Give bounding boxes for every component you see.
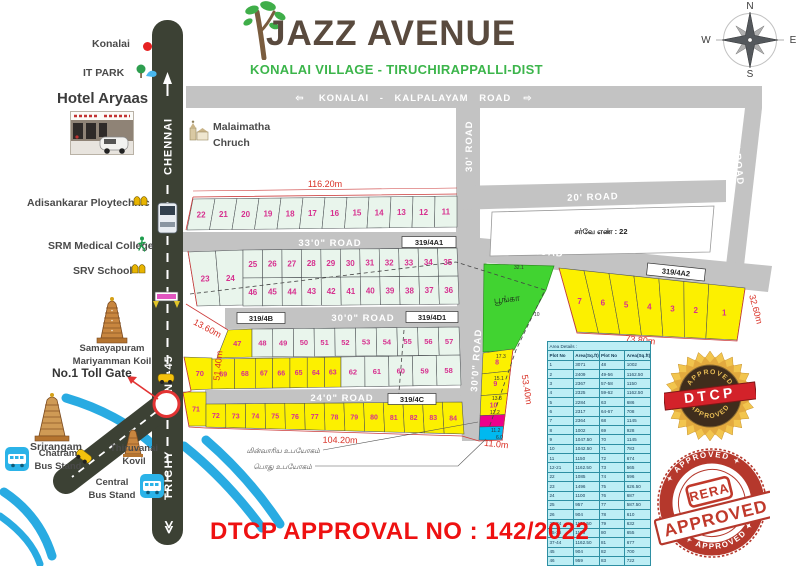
plot-number: 16: [330, 209, 339, 218]
chatram-line1: Chatram: [32, 448, 84, 461]
plot-number: 76: [291, 414, 299, 421]
area-table-cell: 25: [548, 500, 574, 509]
annotation-public: பொது உபயோகம்: [253, 463, 312, 472]
plot-number: 36: [444, 286, 453, 295]
road-24-label: 24'0" ROAD: [310, 393, 373, 404]
area-table-cell: 700: [625, 547, 651, 556]
plot-number: 67: [260, 371, 268, 378]
trichy-chevrons: ≪: [161, 520, 176, 534]
dim-small: 32.1: [514, 265, 524, 271]
area-table-cell: 45: [548, 547, 574, 556]
plot-number: 8: [495, 359, 499, 366]
road-30c-label: 30' ROAD: [464, 121, 475, 172]
area-table-cell: 686: [625, 398, 651, 407]
plot-number: 21: [219, 210, 228, 219]
dim-small: 10: [534, 312, 540, 318]
plot-number: 81: [390, 415, 398, 422]
dtcp-approved-stamp: APPROVED APPROVED DTCP: [664, 348, 756, 446]
plot-number: 6: [601, 299, 606, 308]
area-table-cell: 81: [599, 538, 625, 547]
plot-number: 27: [287, 259, 296, 268]
central-bus-stand-icon: [140, 474, 164, 498]
area-table-cell: 83: [599, 556, 625, 565]
plot-number: 53: [362, 338, 370, 347]
area-table-cell: 1085: [573, 472, 599, 481]
area-table-cell: 1002: [573, 426, 599, 435]
samayapuram-temple-icon: [96, 296, 128, 344]
plot-number: 84: [449, 415, 457, 422]
plot-number: 9: [493, 381, 497, 388]
plot-number: 7: [577, 297, 582, 306]
area-table-cell: 72: [599, 454, 625, 463]
area-table-row: 12-211162.5073565: [548, 463, 651, 472]
area-table-cell: 1145: [625, 435, 651, 444]
area-table-cell: 75: [599, 482, 625, 491]
survey-box-label: 319/4A1: [415, 238, 443, 247]
area-table-cell: 23: [548, 482, 574, 491]
area-table-cell: 78: [599, 510, 625, 519]
reserved-plot: [480, 415, 505, 427]
area-table-cell: 9: [548, 435, 574, 444]
area-table-cell: 12-21: [548, 463, 574, 472]
survey-box-label: 319/4C: [400, 395, 425, 404]
area-table-cell: 722: [625, 556, 651, 565]
landmark-malaimatha: Malaimatha Chruch: [213, 120, 270, 152]
plot-number: 82: [410, 415, 418, 422]
plot-number: 51: [320, 338, 328, 347]
landmark-thiruvanai: Thiruvanai Kovil: [104, 443, 164, 469]
plot-number: 40: [366, 287, 375, 296]
compass-hub: [748, 38, 752, 42]
area-table-cell: 1162.50: [625, 370, 651, 379]
plot-number: 44: [288, 287, 297, 296]
area-table-cell: 10: [548, 444, 574, 453]
compass-n: N: [746, 1, 753, 12]
plot-number: 18: [286, 209, 295, 218]
area-table-cell: 57-58: [599, 379, 625, 388]
area-table-header: Plot No: [548, 351, 574, 360]
plot-number: 65: [295, 370, 303, 377]
central-line2: Bus Stand: [84, 490, 140, 503]
area-table-cell: 1150: [625, 379, 651, 388]
landmark-srv: SRV School: [73, 265, 132, 277]
area-table-cell: 928: [625, 426, 651, 435]
dim-116: 116.20m: [308, 179, 342, 189]
area-table-cell: 1162.50: [573, 463, 599, 472]
bus-icon: [158, 203, 177, 233]
dim-small: 15.1: [494, 376, 504, 382]
plot-number: 31: [365, 259, 374, 268]
area-table-cell: 959: [573, 556, 599, 565]
plot-number: 28: [307, 259, 316, 268]
area-table-cell: 783: [625, 444, 651, 453]
plot-number: 77: [311, 414, 319, 421]
dim-53: 53.40m: [520, 374, 535, 405]
roundabout: [154, 392, 179, 417]
plot-number: 80: [370, 415, 378, 422]
banner-arrow-right: ⇨: [524, 93, 533, 104]
road-30-label: 30'0" ROAD: [331, 313, 394, 324]
plot-number: 78: [331, 414, 339, 421]
area-table-cell: 610: [625, 510, 651, 519]
area-table-cell: 3: [548, 379, 574, 388]
area-table-header: Area(Sq.ft): [625, 351, 651, 360]
area-table-cell: 59-62: [599, 388, 625, 397]
dim-104: 104.20m: [322, 435, 357, 446]
area-table-cell: 1100: [573, 491, 599, 500]
dim-small: 11.2: [491, 428, 501, 434]
area-table-cell: 82: [599, 547, 625, 556]
plot-number: 41: [346, 287, 355, 296]
area-table-row: 4695983722: [548, 556, 651, 565]
area-table-cell: 73: [599, 463, 625, 472]
area-table-title: Area Details :: [548, 342, 651, 351]
area-table-row: 101042.5071783: [548, 444, 651, 453]
plot-number: 3: [670, 304, 675, 313]
area-table-cell: 5: [548, 398, 574, 407]
area-table-cell: 1496: [573, 482, 599, 491]
plot-number: 62: [349, 368, 357, 377]
plot-number: 26: [268, 260, 277, 269]
area-table-cell: 6: [548, 407, 574, 416]
thiruvanai-line2: Kovil: [104, 456, 164, 469]
plot-number: 2: [693, 306, 698, 315]
plot-number: 5: [624, 301, 629, 310]
survey-box-label: 319/4B: [249, 314, 274, 323]
plot-number: 74: [252, 414, 260, 421]
area-table-row: 6231764-67708: [548, 407, 651, 416]
plot-number: 38: [405, 286, 414, 295]
plot-number: 30: [346, 259, 355, 268]
area-table-cell: 587.50: [625, 500, 651, 509]
plot-number: 14: [375, 208, 384, 217]
area-table-cell: 674: [625, 454, 651, 463]
landmark-it-park: IT PARK: [83, 67, 124, 79]
central-line1: Central: [84, 477, 140, 490]
area-table-cell: 49-56: [599, 370, 625, 379]
plot-number: 47: [233, 339, 241, 348]
road-20-label: 20' ROAD: [567, 191, 619, 204]
area-table-cell: 632: [625, 519, 651, 528]
chatram-bus-stand-icon: [5, 447, 29, 471]
thiruvanai-line1: Thiruvanai: [104, 443, 164, 456]
konalai-dot-icon: [143, 42, 152, 51]
area-table-cell: 8: [548, 426, 574, 435]
area-table-row: 8100269928: [548, 426, 651, 435]
area-table-cell: 2325: [573, 388, 599, 397]
area-table-cell: 48: [599, 360, 625, 369]
area-table-cell: 2284: [573, 398, 599, 407]
dim-small: 17.3: [496, 354, 506, 360]
plot-number: 32: [385, 259, 394, 268]
area-table-cell: 68: [599, 416, 625, 425]
plot-number: 1: [722, 309, 727, 318]
plot-number: 64: [312, 370, 320, 377]
area-table-cell: 904: [573, 547, 599, 556]
plot-number: 24: [226, 274, 235, 283]
malaimatha-line1: Malaimatha: [213, 120, 270, 136]
plot-number: 33: [404, 258, 413, 267]
area-table-cell: 11: [548, 454, 574, 463]
park-area: [483, 264, 554, 352]
plot-number: 52: [341, 338, 349, 347]
landmark-central: Central Bus Stand: [84, 477, 140, 503]
area-table-row: 2240949-561162.50: [548, 370, 651, 379]
plot-number: 10: [490, 402, 498, 409]
compass-s: S: [747, 69, 754, 80]
area-table-cell: 1047.50: [573, 435, 599, 444]
rera-approved-stamp: ✦ APPROVED ✦ ✦ APPROVED ✦ RERA APPROVED: [654, 444, 770, 562]
malaimatha-line2: Chruch: [213, 136, 270, 152]
area-table-cell: 63: [599, 398, 625, 407]
landmark-samayapuram: Samayapuram Mariyamman Koil: [72, 343, 152, 369]
plot-number: 19: [263, 210, 272, 219]
area-table-cell: 22: [548, 472, 574, 481]
area-table-row: 23149675626.50: [548, 482, 651, 491]
plot-number: 54: [383, 337, 392, 346]
area-table-cell: 76: [599, 491, 625, 500]
plot-number: 73: [232, 413, 240, 420]
plot-number: 17: [308, 209, 317, 218]
walking-person-icon: [137, 236, 150, 252]
institute-icon: [133, 193, 149, 206]
area-table-row: 22108574596: [548, 472, 651, 481]
area-table-row: 24110076687: [548, 491, 651, 500]
area-table-cell: 708: [625, 407, 651, 416]
plot-number: 59: [420, 366, 428, 375]
plot-number: 29: [326, 259, 335, 268]
area-table-cell: 2367: [573, 379, 599, 388]
area-table-cell: 626.50: [625, 482, 651, 491]
chennai-label: CHENNAI: [163, 118, 175, 175]
banner-road-label: KONALAI - KALPALAYAM ROAD: [319, 93, 511, 104]
samayapuram-line1: Samayapuram: [72, 343, 152, 356]
area-table-cell: 2364: [573, 416, 599, 425]
chatram-line2: Bus Stand: [32, 461, 84, 474]
area-table-header: Area(Sq.ft): [573, 351, 599, 360]
dim-13: 13.60m: [192, 317, 223, 340]
plot-number: 22: [197, 210, 206, 219]
area-table-row: 3236757-581150: [548, 379, 651, 388]
landmark-chatram: Chatram Bus Stand: [32, 448, 84, 474]
area-table-cell: 64-67: [599, 407, 625, 416]
plot-number: 58: [444, 366, 452, 375]
area-table-cell: 69: [599, 426, 625, 435]
area-table-row: 91047.50701145: [548, 435, 651, 444]
dim-small: 12.2: [490, 410, 500, 416]
plot-number: 34: [424, 258, 433, 267]
plot-number: 45: [268, 288, 277, 297]
area-table-cell: 1150: [573, 454, 599, 463]
plot-number: 71: [192, 407, 200, 414]
road-33-label: 33'0" ROAD: [298, 238, 361, 249]
plot-number: 83: [429, 415, 437, 422]
area-table-row: 2595777587.50: [548, 500, 651, 509]
plot-number: 37: [425, 286, 434, 295]
plot-number: 39: [385, 287, 394, 296]
area-table-cell: 2409: [573, 370, 599, 379]
plot-number: 35: [443, 258, 452, 267]
area-table-cell: 80: [599, 528, 625, 537]
plot-number: 25: [248, 260, 257, 269]
area-table-cell: 77: [599, 500, 625, 509]
plot-number: 42: [327, 287, 336, 296]
area-table-cell: 71: [599, 444, 625, 453]
area-table-cell: 3071: [573, 360, 599, 369]
area-table-cell: 70: [599, 435, 625, 444]
banner-arrow-left: ⇦: [295, 93, 305, 104]
landmark-adisankarar: Adisankarar Ploytechnic: [27, 197, 150, 209]
area-table-row: 11115072674: [548, 454, 651, 463]
srirangam-temple-icon: [34, 392, 70, 442]
plot-number: 50: [300, 338, 308, 347]
plot-number: 43: [307, 287, 316, 296]
area-table-cell: 2: [548, 370, 574, 379]
dim-32: 32.60m: [747, 293, 764, 325]
area-table-cell: 79: [599, 519, 625, 528]
survey-note: சர்வே எண் : 22: [574, 227, 627, 236]
plot-number: 68: [241, 371, 249, 378]
area-table-cell: 565: [625, 463, 651, 472]
annotation-tneb: மின்வாரிய உபயோகம்: [247, 447, 321, 455]
it-park-icon: [136, 62, 160, 80]
survey-box-label: 319/4D1: [418, 313, 446, 322]
landmark-konalai: Konalai: [92, 38, 130, 50]
area-table-header: Plot No: [599, 351, 625, 360]
plot-number: 20: [241, 210, 250, 219]
plot-number: 56: [424, 337, 432, 346]
plot-number: 13: [397, 208, 406, 217]
area-table-cell: 1002: [625, 360, 651, 369]
plot-number: 15: [352, 209, 361, 218]
compass-w: W: [701, 35, 711, 46]
plot-number: 61: [373, 367, 381, 376]
plot-number: 75: [271, 414, 279, 421]
area-table-cell: 596: [625, 472, 651, 481]
area-table-cell: 46: [548, 556, 574, 565]
plot-number: 66: [277, 370, 285, 377]
area-table-row: 4590482700: [548, 547, 651, 556]
hotel-aryaas-photo: [70, 111, 134, 155]
plot-number: 12: [419, 208, 428, 217]
area-table-cell: 4: [548, 388, 574, 397]
area-table-cell: 1: [548, 360, 574, 369]
area-table-cell: 7: [548, 416, 574, 425]
area-table-row: 5228463686: [548, 398, 651, 407]
plot-number: 57: [445, 337, 453, 346]
area-table-cell: 687: [625, 491, 651, 500]
plot-number: 23: [201, 275, 210, 284]
dim-small: 6.0: [496, 435, 503, 441]
area-table-cell: 677: [625, 538, 651, 547]
area-table-cell: 24: [548, 491, 574, 500]
compass-rose: N W E S: [701, 1, 796, 80]
plot-number: 72: [212, 413, 220, 420]
area-table-cell: 655: [625, 528, 651, 537]
subtitle: KONALAI VILLAGE - TIRUCHIRAPPALLI-DIST: [250, 62, 543, 77]
area-table-cell: 74: [599, 472, 625, 481]
plot-number: 48: [258, 339, 266, 348]
page-title: JAZZ AVENUE: [266, 14, 516, 54]
dtcp-approval-number: DTCP APPROVAL NO : 142/2022: [210, 518, 589, 546]
area-table-cell: 2317: [573, 407, 599, 416]
institute-icon: [131, 261, 147, 274]
layout-canvas: 2221201918171615141312112324252627282930…: [0, 0, 800, 566]
area-table-cell: 1145: [625, 416, 651, 425]
plot-number: 4: [647, 303, 652, 312]
plot-number: 11: [442, 208, 451, 217]
plot-number: 49: [279, 338, 287, 347]
area-table-cell: 957: [573, 500, 599, 509]
area-table-cell: 1042.50: [573, 444, 599, 453]
plot-number: 46: [248, 288, 257, 297]
area-table-row: 13071481002: [548, 360, 651, 369]
plot-number: 63: [329, 370, 337, 377]
dim-small: 13.8: [492, 396, 502, 402]
landmark-toll-gate: No.1 Toll Gate: [52, 366, 132, 380]
nh45-label: NH-45: [163, 355, 175, 392]
area-table-cell: 1162.50: [625, 388, 651, 397]
landmark-hotel-aryaas: Hotel Aryaas: [57, 90, 148, 107]
church-icon: [188, 120, 210, 144]
trichy-label: TRICHY: [163, 450, 175, 500]
compass-e: E: [790, 35, 797, 46]
area-table-row: 72364681145: [548, 416, 651, 425]
area-table-row: 4232559-621162.50: [548, 388, 651, 397]
plot-number: 70: [196, 369, 204, 378]
plot-number: 55: [403, 337, 411, 346]
plot-number: 79: [350, 415, 358, 422]
